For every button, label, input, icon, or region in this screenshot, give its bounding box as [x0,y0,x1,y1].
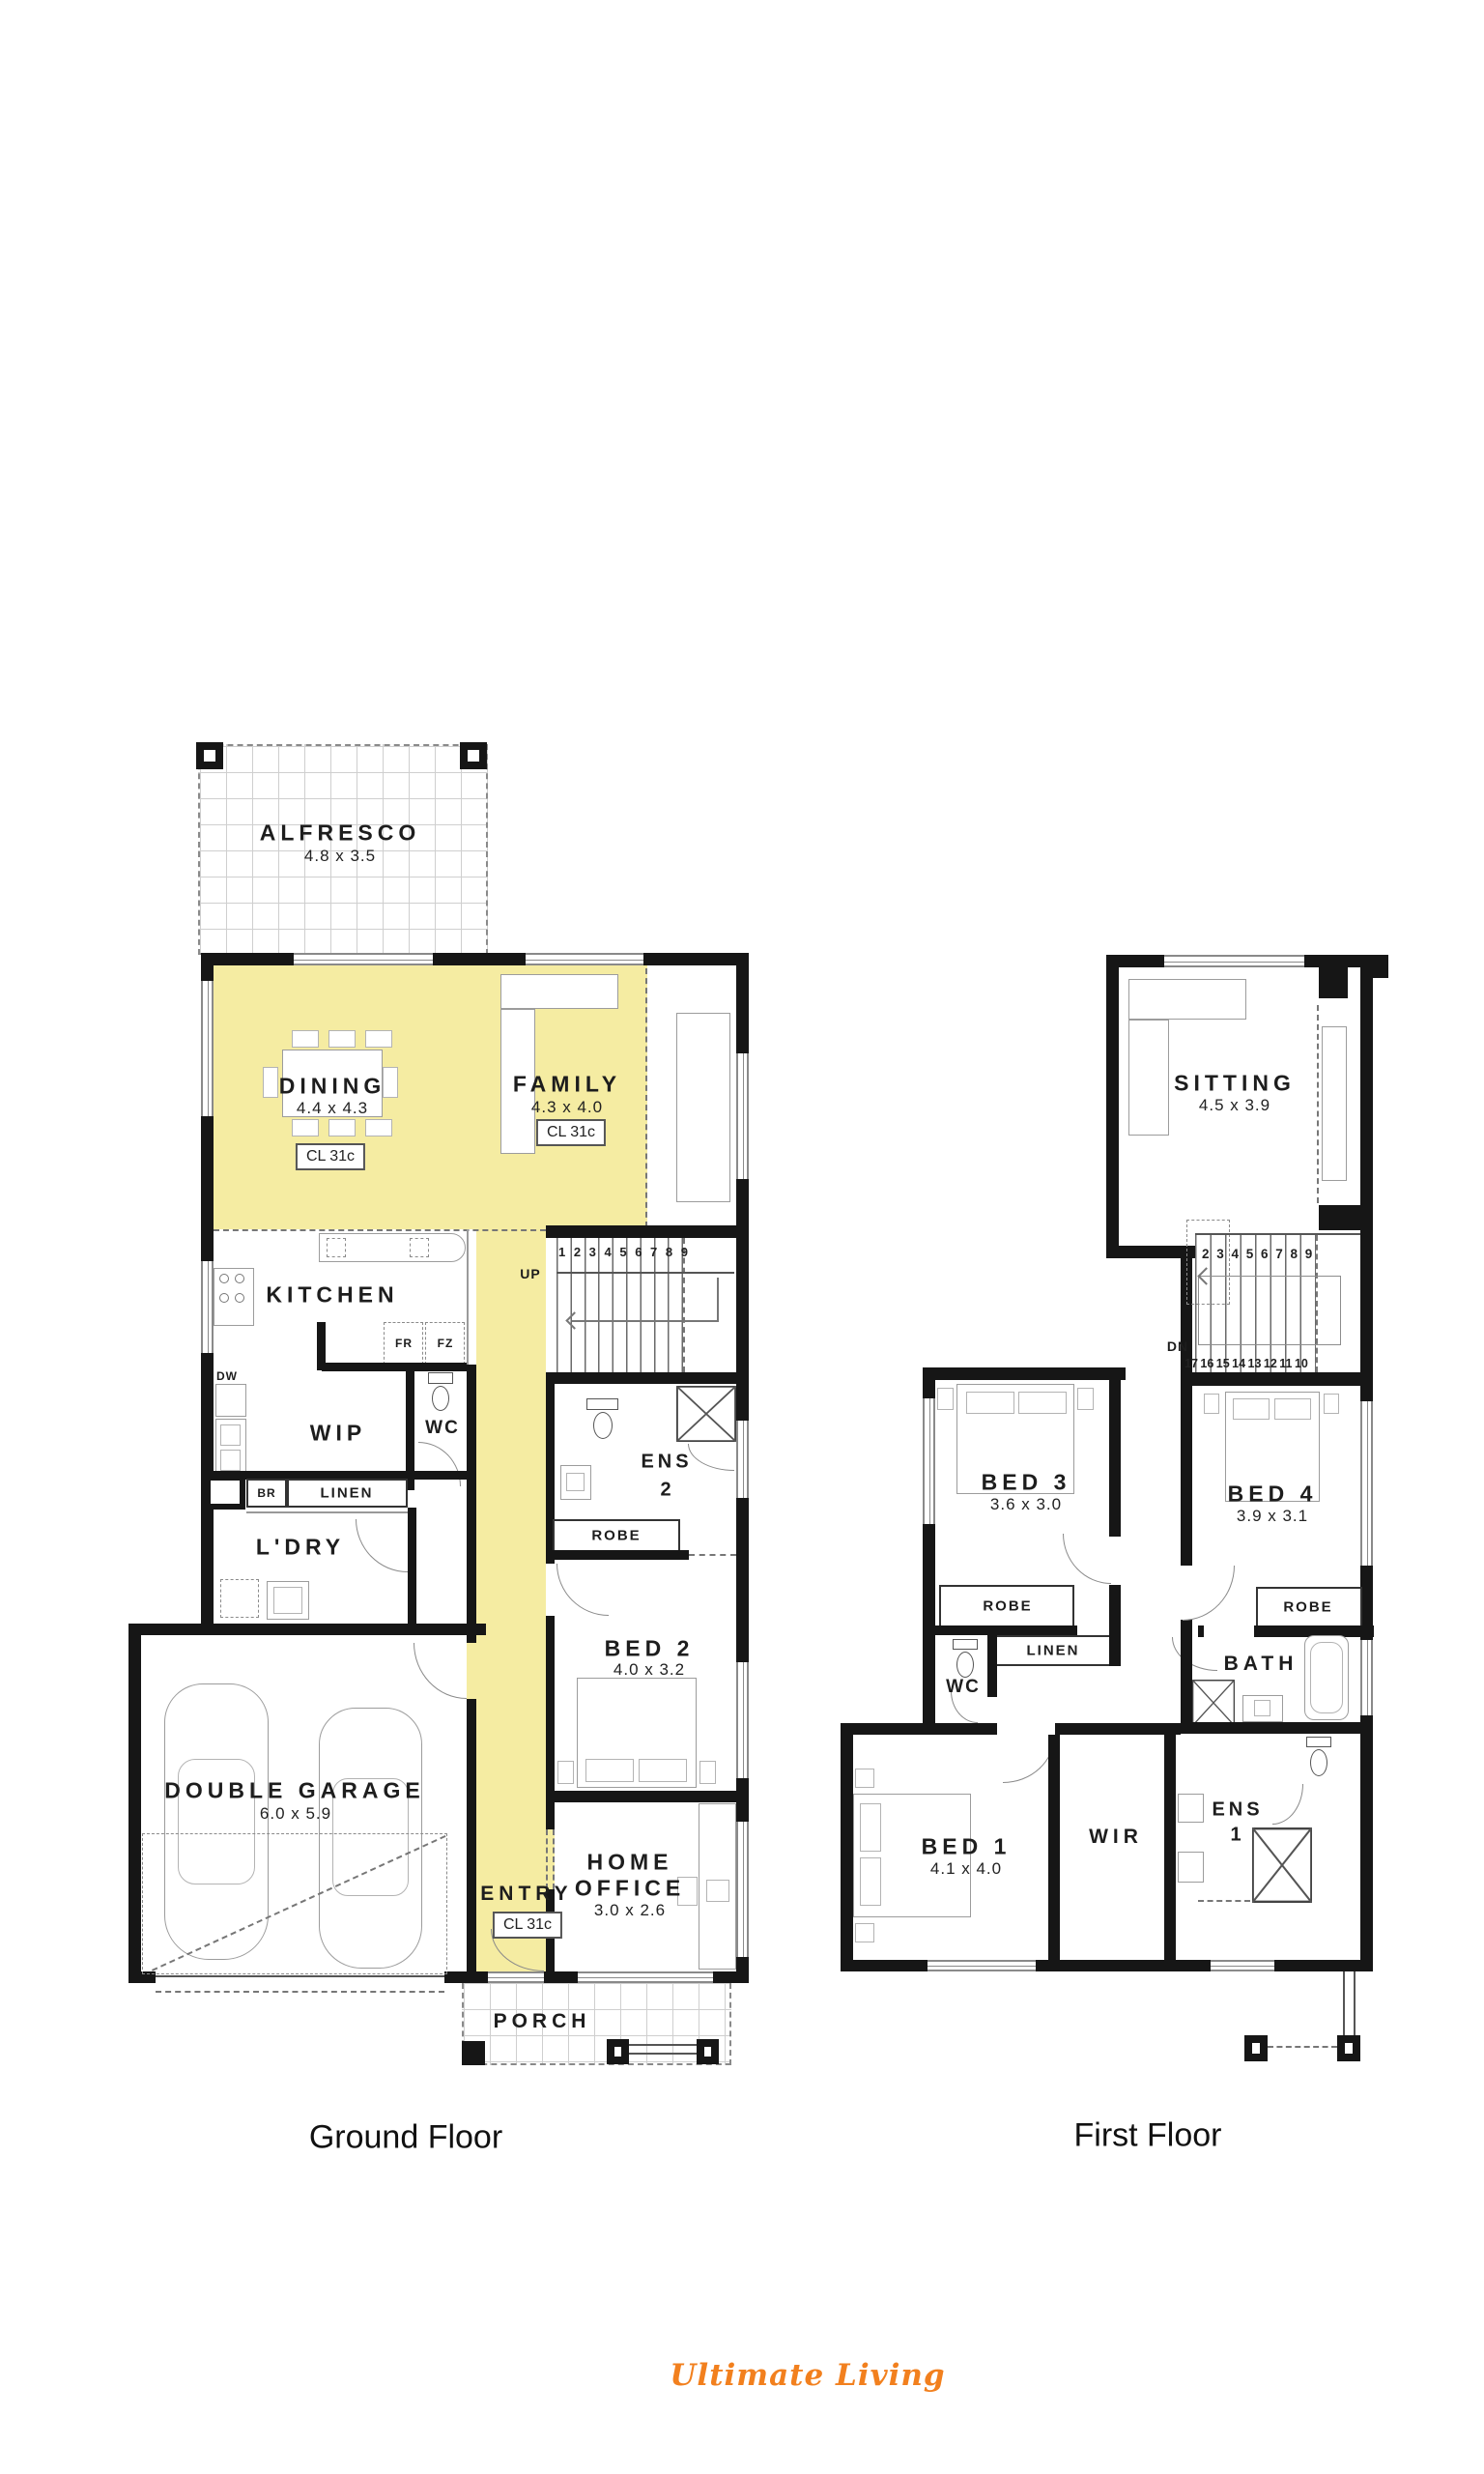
wall [841,1723,853,1971]
wall [1181,1722,1373,1734]
wall [1181,1386,1192,1566]
robe-label: ROBE [591,1528,641,1544]
window [927,1960,1036,1971]
stairs-numbers: 1 2 3 4 5 6 7 8 9 [558,1245,688,1259]
garage-dashed-zone [142,1833,447,1974]
sitting-cabinet [1322,1026,1347,1181]
wall-pier [1319,1205,1360,1230]
sliding-door [294,953,433,965]
wip-label: WIP [310,1421,366,1447]
dining-dims: 4.4 x 4.3 [297,1099,368,1118]
window [526,953,643,965]
porch-post [1244,2035,1268,2061]
robe3-label: ROBE [983,1598,1032,1615]
toilet-bowl [1310,1749,1327,1776]
ens1-vanity [1178,1852,1204,1883]
toilet-cistern [1306,1737,1331,1747]
downpipe [1343,1971,1356,2035]
bed2-dims: 4.0 x 3.2 [614,1660,685,1680]
family-dims: 4.3 x 4.0 [531,1098,603,1117]
wc-label: WC [425,1418,460,1439]
window [1164,955,1304,967]
bed3-pillow [966,1392,1014,1414]
stairs-numbers-top: 2 3 4 5 6 7 8 9 [1202,1247,1312,1261]
sitting-sofa [1128,979,1246,1020]
entry-ceiling-tag: CL 31c [493,1912,562,1939]
bed4-dims: 3.9 x 3.1 [1237,1507,1308,1526]
wall [1360,955,1388,978]
bed4-label: BED 4 [1228,1482,1318,1508]
wall [1055,1723,1181,1735]
robe4-label: ROBE [1283,1599,1332,1616]
kitchen-label: KITCHEN [266,1282,398,1309]
dining-ceiling-tag: CL 31c [296,1143,365,1170]
ens1-label-1: ENS [1212,1799,1263,1822]
window [736,1053,749,1179]
first-floor-title: First Floor [1074,2117,1222,2155]
wall [1109,1367,1121,1537]
bed3-pillow [1018,1392,1067,1414]
bed3-side-table [1077,1388,1094,1410]
sitting-sofa [1128,1020,1169,1136]
window [736,1662,749,1778]
bed3-side-table [937,1388,954,1410]
wall [1109,1585,1121,1638]
window [1360,1401,1373,1566]
bed4-side-table [1204,1394,1219,1414]
window [1360,1640,1373,1715]
window [736,1421,749,1498]
window [1211,1960,1274,1971]
ens2-label-2: 2 [660,1480,672,1502]
dining-label: DINING [279,1074,386,1100]
porch-post [1337,2035,1360,2061]
bed3-dims: 3.6 x 3.0 [990,1495,1062,1514]
ldry-label: L'DRY [256,1535,345,1561]
bed1-pillow [860,1857,881,1906]
wall [923,1367,1126,1380]
wir-label: WIR [1089,1826,1143,1849]
toilet-bowl [956,1652,974,1678]
wall [1109,1635,1121,1666]
wall [841,1723,997,1735]
family-label: FAMILY [513,1072,621,1098]
bed4-side-table [1324,1394,1339,1414]
bed4-door-arc [1183,1566,1235,1621]
window [201,1261,214,1353]
porch-dashed [1268,2046,1337,2048]
wall [987,1635,997,1697]
bathtub-inner [1310,1642,1343,1713]
bed3-label: BED 3 [982,1470,1071,1496]
dashed [1198,1900,1250,1902]
wall-pier [1319,967,1348,998]
bath-shower [1192,1680,1235,1726]
bed1-side-table [855,1923,874,1942]
sitting-label: SITTING [1174,1071,1296,1097]
bath-label: BATH [1224,1653,1298,1676]
garage-dims: 6.0 x 5.9 [260,1804,331,1824]
office-dims: 3.0 x 2.6 [594,1901,666,1920]
alfresco-dims: 4.8 x 3.5 [304,847,376,866]
bed4-pillow [1274,1398,1311,1420]
wc-ff-label: WC [946,1677,981,1698]
porch-label: PORCH [494,2010,591,2033]
bath-basin [1254,1700,1270,1716]
bed3-door-arc [1063,1534,1111,1584]
wall [1106,955,1119,1258]
bed4-pillow [1233,1398,1270,1420]
family-ceiling-tag: CL 31c [536,1119,606,1146]
floorplan-page: { "colors":{"highlight_yellow":"#F5ECA2"… [0,0,1484,2474]
ens1-label-2: 1 [1230,1825,1242,1847]
window [201,981,214,1116]
linen-ff-label: LINEN [1027,1643,1080,1659]
wall [1048,1735,1060,1971]
wall [841,1960,1373,1971]
brand-logo: Ultimate Living [670,2358,945,2393]
entry-door-glazing [488,1971,544,1983]
window [578,1971,713,1983]
alfresco-label: ALFRESCO [260,820,421,847]
wall [1181,1372,1373,1386]
toilet-cistern [953,1639,978,1650]
first-floor-plan: SITTING 4.5 x 3.9 2 3 4 5 6 7 8 9 17 16 … [0,0,1484,2474]
bed1-label: BED 1 [922,1834,1012,1860]
office-label-2: OFFICE [575,1876,685,1902]
ens1-vanity [1178,1794,1204,1823]
bed2-label: BED 2 [605,1636,695,1662]
wall [1106,1246,1195,1258]
dn-label: DN [1167,1338,1188,1354]
window [923,1398,935,1524]
sitting-dims: 4.5 x 3.9 [1199,1096,1270,1115]
stairs-rail-mid [1198,1276,1341,1345]
bed1-side-table [855,1769,874,1788]
bed1-pillow [860,1803,881,1852]
stairs-numbers-bottom: 17 16 15 14 13 12 11 10 [1184,1357,1308,1370]
bath-door-arc [1172,1637,1217,1671]
ens2-label-1: ENS [641,1452,692,1474]
window [736,1822,749,1957]
sitting-boundary-dashed [1317,1005,1319,1203]
garage-label: DOUBLE GARAGE [164,1778,424,1804]
wall [935,1625,1077,1635]
bed1-door-arc [1003,1735,1055,1783]
wall [1181,1625,1192,1734]
office-label-1: HOME [587,1850,673,1876]
bed1-dims: 4.1 x 4.0 [930,1859,1002,1879]
entry-label: ENTRY [480,1883,572,1906]
bath-door-gap [1204,1625,1254,1637]
ens1-door-arc [1272,1784,1303,1825]
ens1-shower [1252,1827,1312,1903]
up-label: UP [520,1266,540,1281]
wall [1164,1735,1176,1971]
